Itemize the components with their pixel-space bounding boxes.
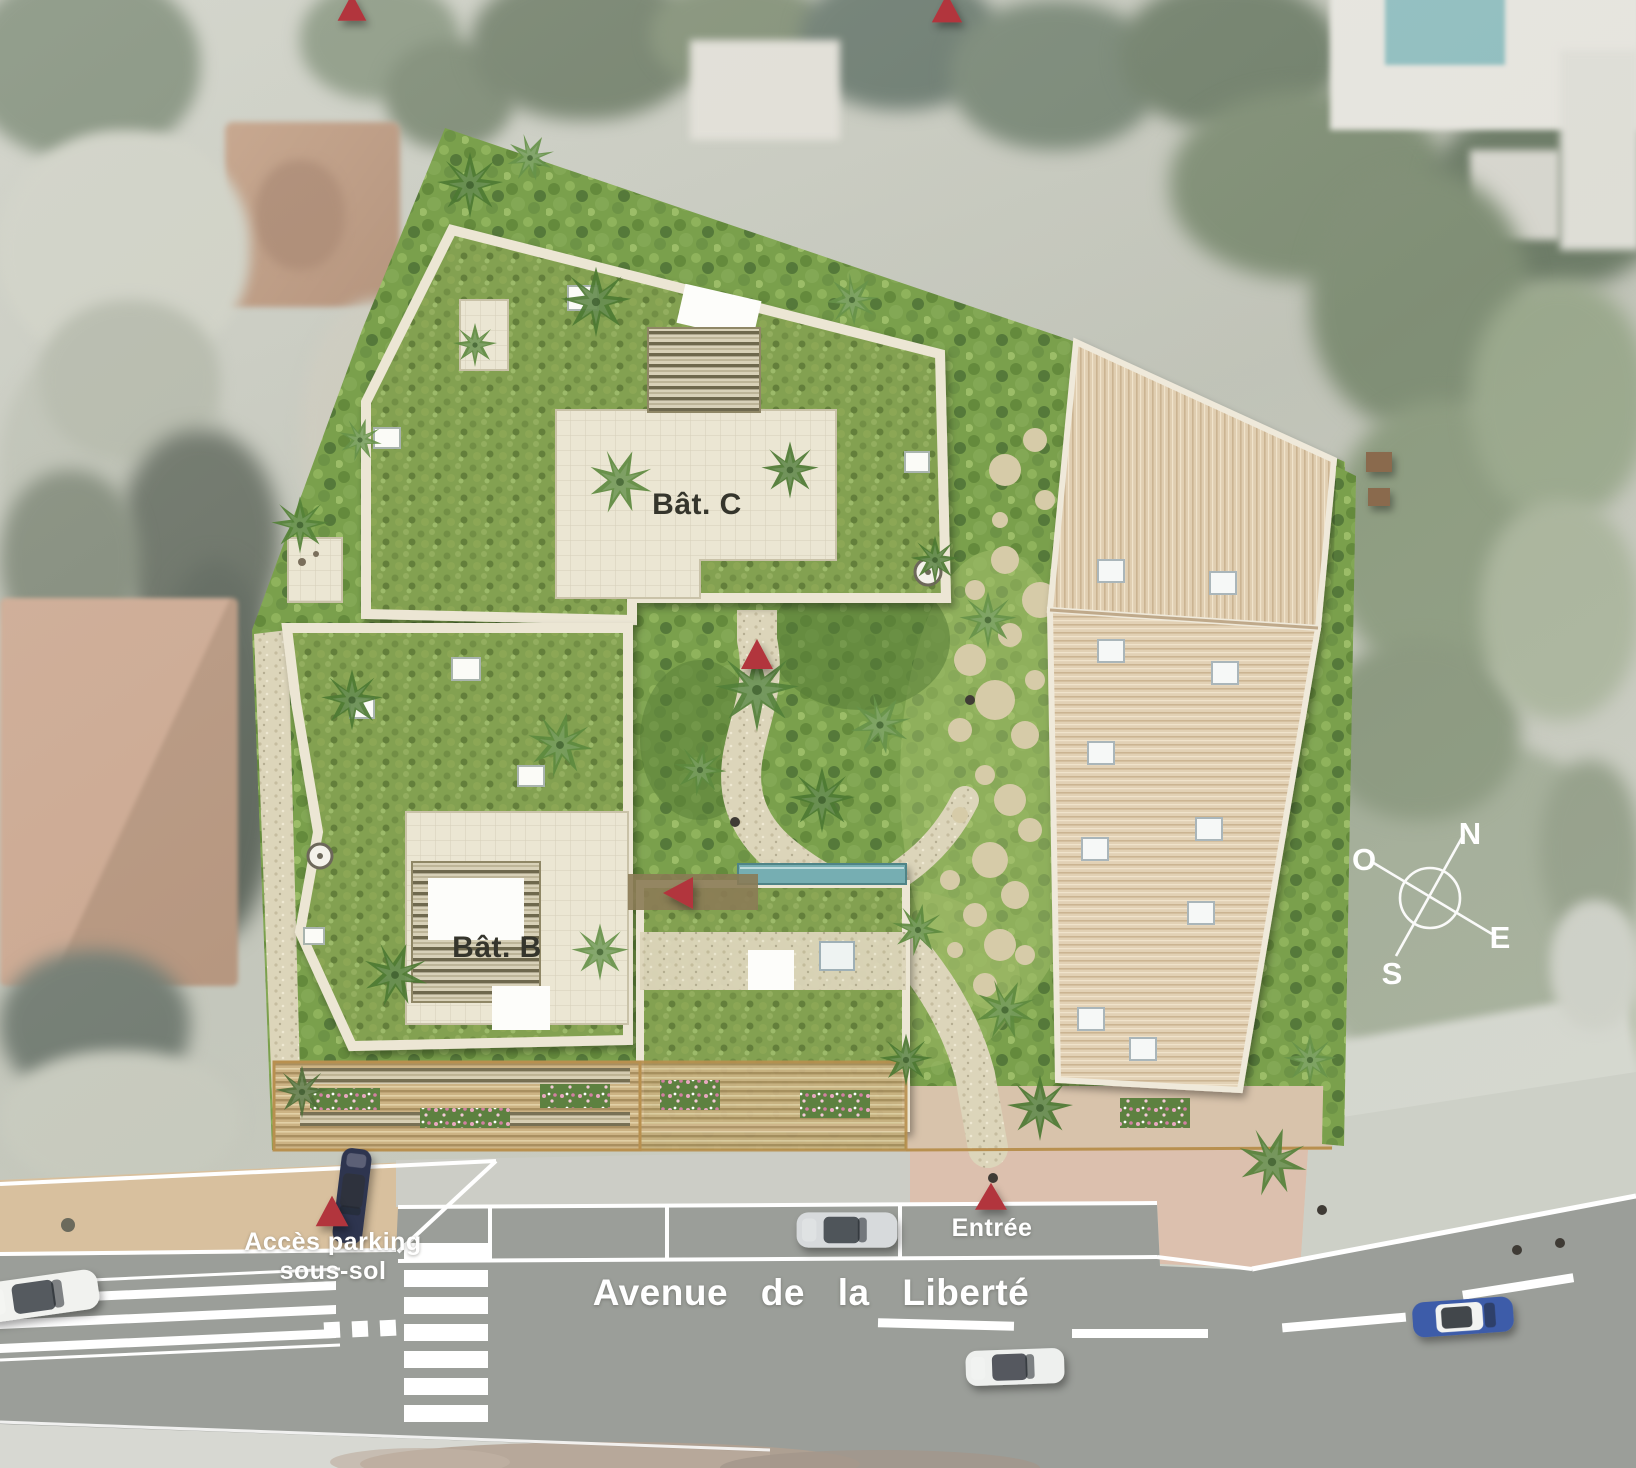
planter (800, 1090, 870, 1118)
bat-b-label: Bât. B (432, 931, 562, 965)
project-site (252, 125, 1565, 1255)
access-top-center-marker-icon (932, 0, 962, 22)
planter (420, 1108, 510, 1128)
dotted-line (324, 1320, 397, 1339)
manhole (61, 1218, 75, 1232)
compass-south: S (1382, 956, 1403, 991)
compass-east: E (1490, 920, 1511, 955)
bat-b-building (287, 628, 628, 1046)
planter (660, 1080, 720, 1110)
compass-rose: N O E S (1348, 804, 1538, 1004)
bat-c-stairs (648, 328, 760, 412)
compass-west: O (1352, 842, 1376, 877)
compass-north: N (1459, 816, 1481, 851)
parking-access-label: Accès parking sous-sol (213, 1228, 453, 1286)
white-car-driving (965, 1348, 1065, 1387)
access-top-left-marker-icon (338, 0, 367, 21)
gray-sidewalk (396, 1150, 910, 1207)
tan-roof-upper (1050, 342, 1334, 628)
garden-terrace (288, 538, 342, 602)
parking-access-line1: Accès parking (213, 1228, 453, 1257)
site-plan-image: Bât. C Bât. B Accès parking sous-sol Ent… (0, 0, 1636, 1468)
parking-access-line2: sous-sol (213, 1257, 453, 1286)
bat-a-skylight (820, 942, 854, 970)
entrance-label: Entrée (922, 1214, 1062, 1243)
street-name-label: Avenue de la Liberté (561, 1272, 1061, 1314)
silver-car-parked (797, 1212, 898, 1247)
planter (1120, 1098, 1190, 1128)
planter (540, 1084, 610, 1108)
compass-lines (1372, 834, 1492, 956)
bat-c-label: Bât. C (632, 488, 762, 522)
blue-car-driving (1411, 1296, 1514, 1338)
